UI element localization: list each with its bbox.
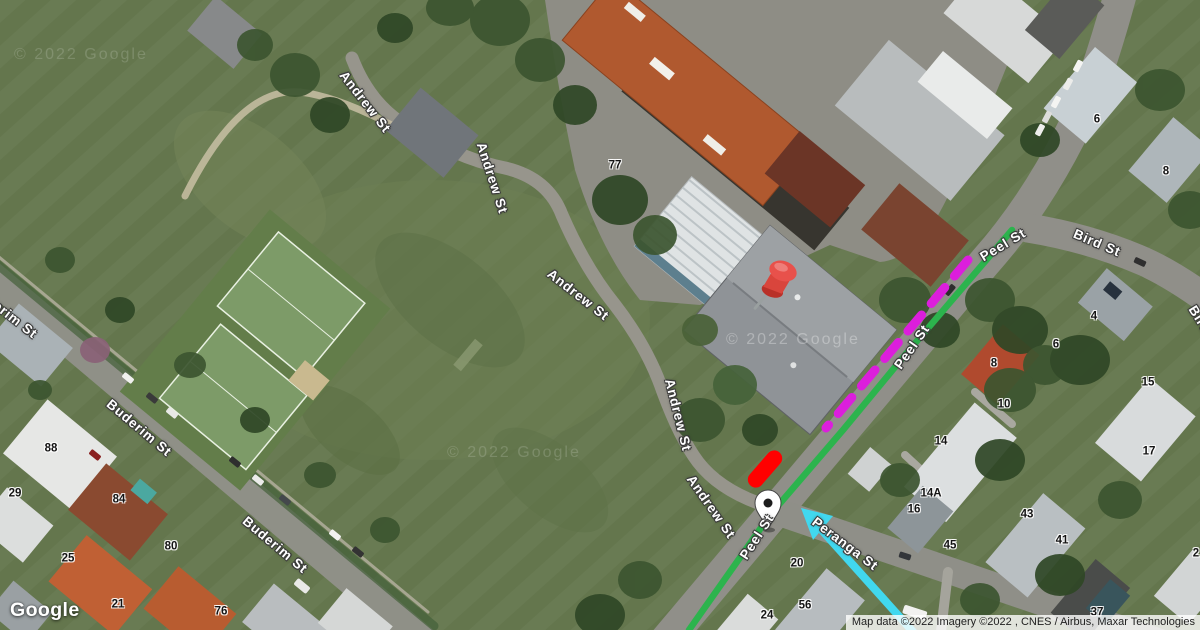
satellite-imagery — [0, 0, 1200, 630]
google-logo[interactable]: Google — [10, 599, 80, 622]
map-attribution: Map data ©2022 Imagery ©2022 , CNES / Ai… — [846, 615, 1200, 630]
satellite-map[interactable]: © 2022 Google © 2022 Google © 2022 Googl… — [0, 0, 1200, 630]
